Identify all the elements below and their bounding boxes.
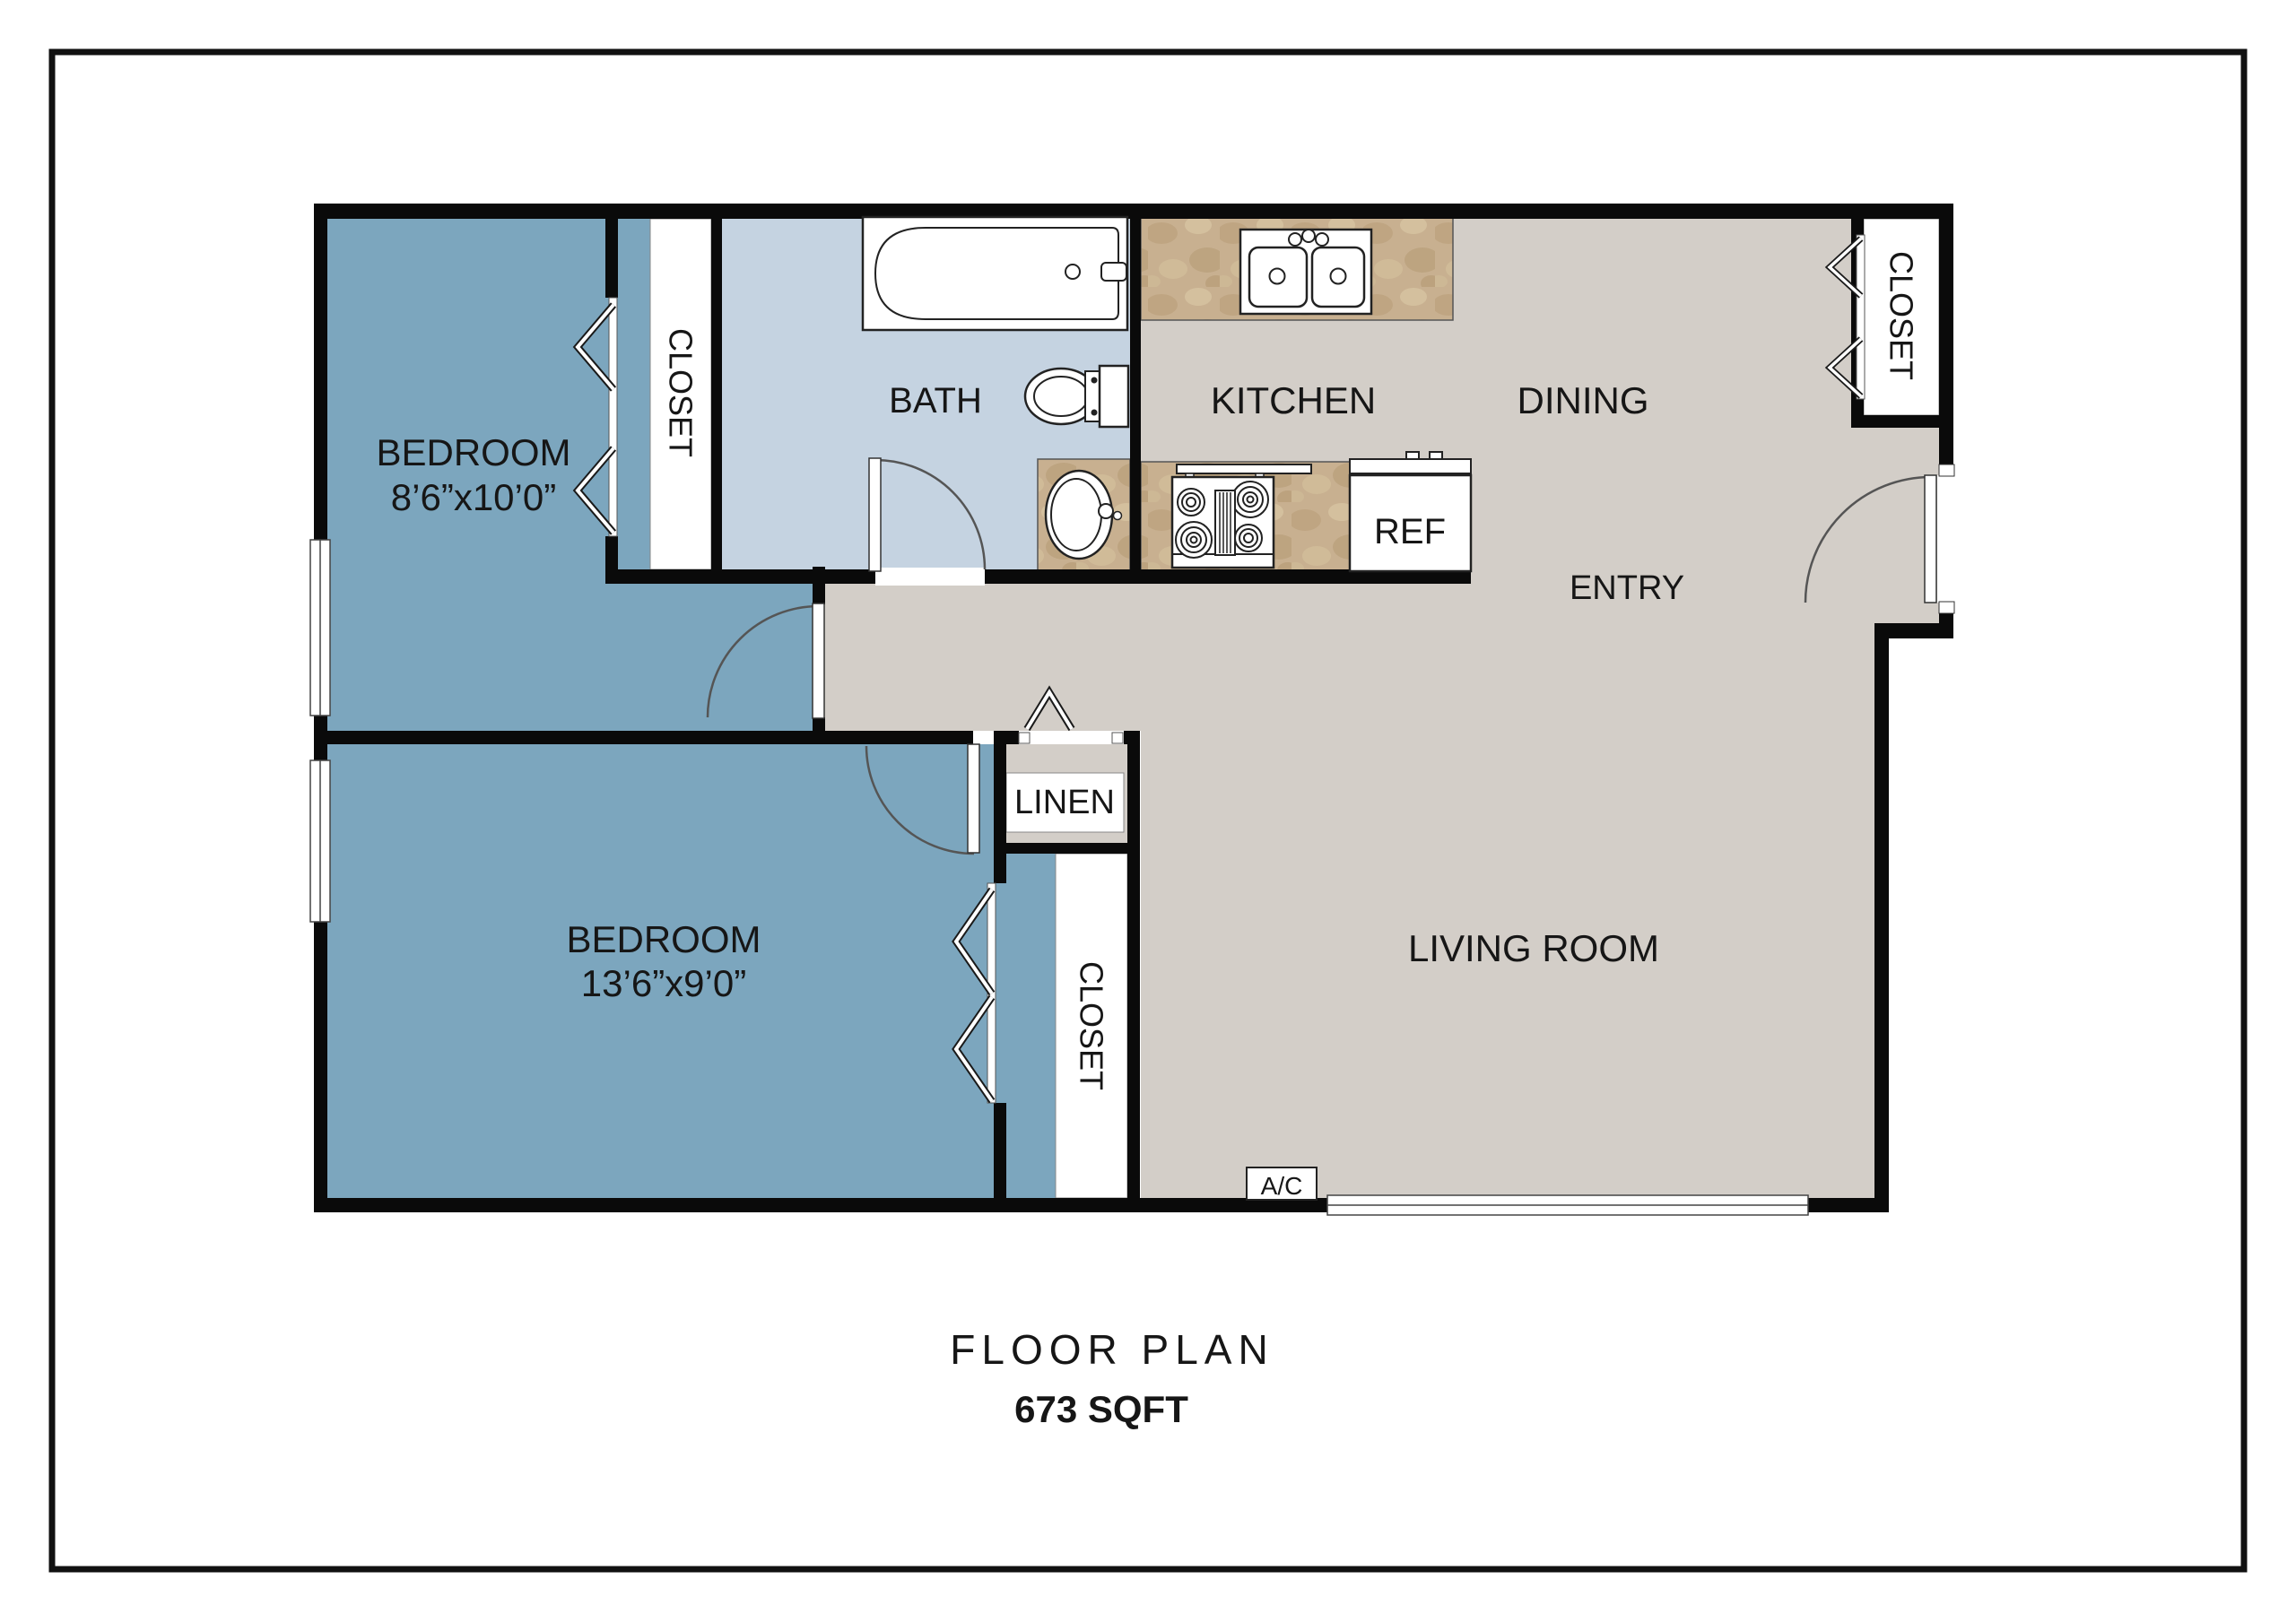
living-room-label: LIVING ROOM (1408, 927, 1659, 969)
wall-closet1-stub-top (605, 217, 618, 298)
bath-door-leaf (869, 458, 881, 571)
window-bedroom2 (310, 760, 330, 922)
entry-door-leaf (1925, 475, 1936, 603)
wall-living-west (1127, 731, 1140, 1198)
wall-top (314, 204, 1953, 219)
bedroom1-dims: 8’6”x10’0” (391, 476, 556, 518)
entry-label: ENTRY (1570, 569, 1684, 607)
hallway-floor (813, 584, 1141, 731)
wall-closet1-stub-bottom (605, 536, 618, 572)
wall-bath-kitchen (1130, 217, 1141, 584)
bedroom1-door-leaf (813, 603, 824, 718)
kitchen-sink (1240, 230, 1371, 314)
closet1-label: CLOSET (663, 328, 700, 457)
wall-closet2-stub-bottom (994, 1103, 1006, 1198)
wall-closet1-bath (711, 217, 722, 584)
wall-closet2-stub-top (994, 854, 1006, 883)
floor-plan-canvas: BEDROOM 8’6”x10’0” CLOSET BATH KITCHEN D… (0, 0, 2296, 1623)
bedroom1-label: BEDROOM (376, 431, 570, 473)
dining-closet-label: CLOSET (1883, 251, 1920, 380)
bath-door-opening (875, 568, 985, 586)
wall-bed1-door-stub-top (813, 567, 825, 604)
closet2-label: CLOSET (1074, 961, 1110, 1090)
window-bedroom1 (310, 540, 330, 716)
dining-label: DINING (1518, 379, 1649, 421)
wall-bath-south-west (605, 569, 875, 584)
title-block: FLOOR PLAN 673 SQFT (950, 1326, 1274, 1430)
kitchen-label: KITCHEN (1211, 379, 1376, 421)
wall-bath-south-east (985, 569, 1141, 584)
bedroom2-door-leaf (968, 744, 979, 853)
entry-door-jamb-top (1939, 464, 1954, 476)
toilet (1025, 366, 1128, 427)
common-area-floor (1141, 217, 1939, 1198)
entry-door-jamb-bottom (1939, 602, 1954, 613)
ac-label: A/C (1261, 1172, 1303, 1200)
entry-door-opening (1937, 475, 1955, 603)
plan-sqft: 673 SQFT (1014, 1388, 1188, 1430)
bedroom2-dims: 13’6”x9’0” (581, 962, 746, 1004)
wall-right-lower (1874, 638, 1889, 1212)
fridge-label: REF (1374, 512, 1446, 551)
wall-linen-north-a (994, 731, 1019, 744)
bedroom2-label: BEDROOM (566, 918, 761, 960)
exterior-notch (1889, 623, 1955, 1212)
bath-label: BATH (889, 381, 982, 421)
wall-dining-closet-south (1851, 415, 1953, 428)
wall-linen-south (994, 843, 1136, 854)
wall-linen-west (994, 744, 1006, 854)
bathtub (863, 217, 1127, 330)
plan-title: FLOOR PLAN (950, 1326, 1274, 1373)
wall-entry-step (1874, 623, 1953, 638)
linen-label: LINEN (1014, 784, 1115, 821)
window-living-room (1327, 1195, 1808, 1215)
wall-bedroom-divider (314, 731, 973, 744)
wall-right-upper (1939, 204, 1953, 475)
